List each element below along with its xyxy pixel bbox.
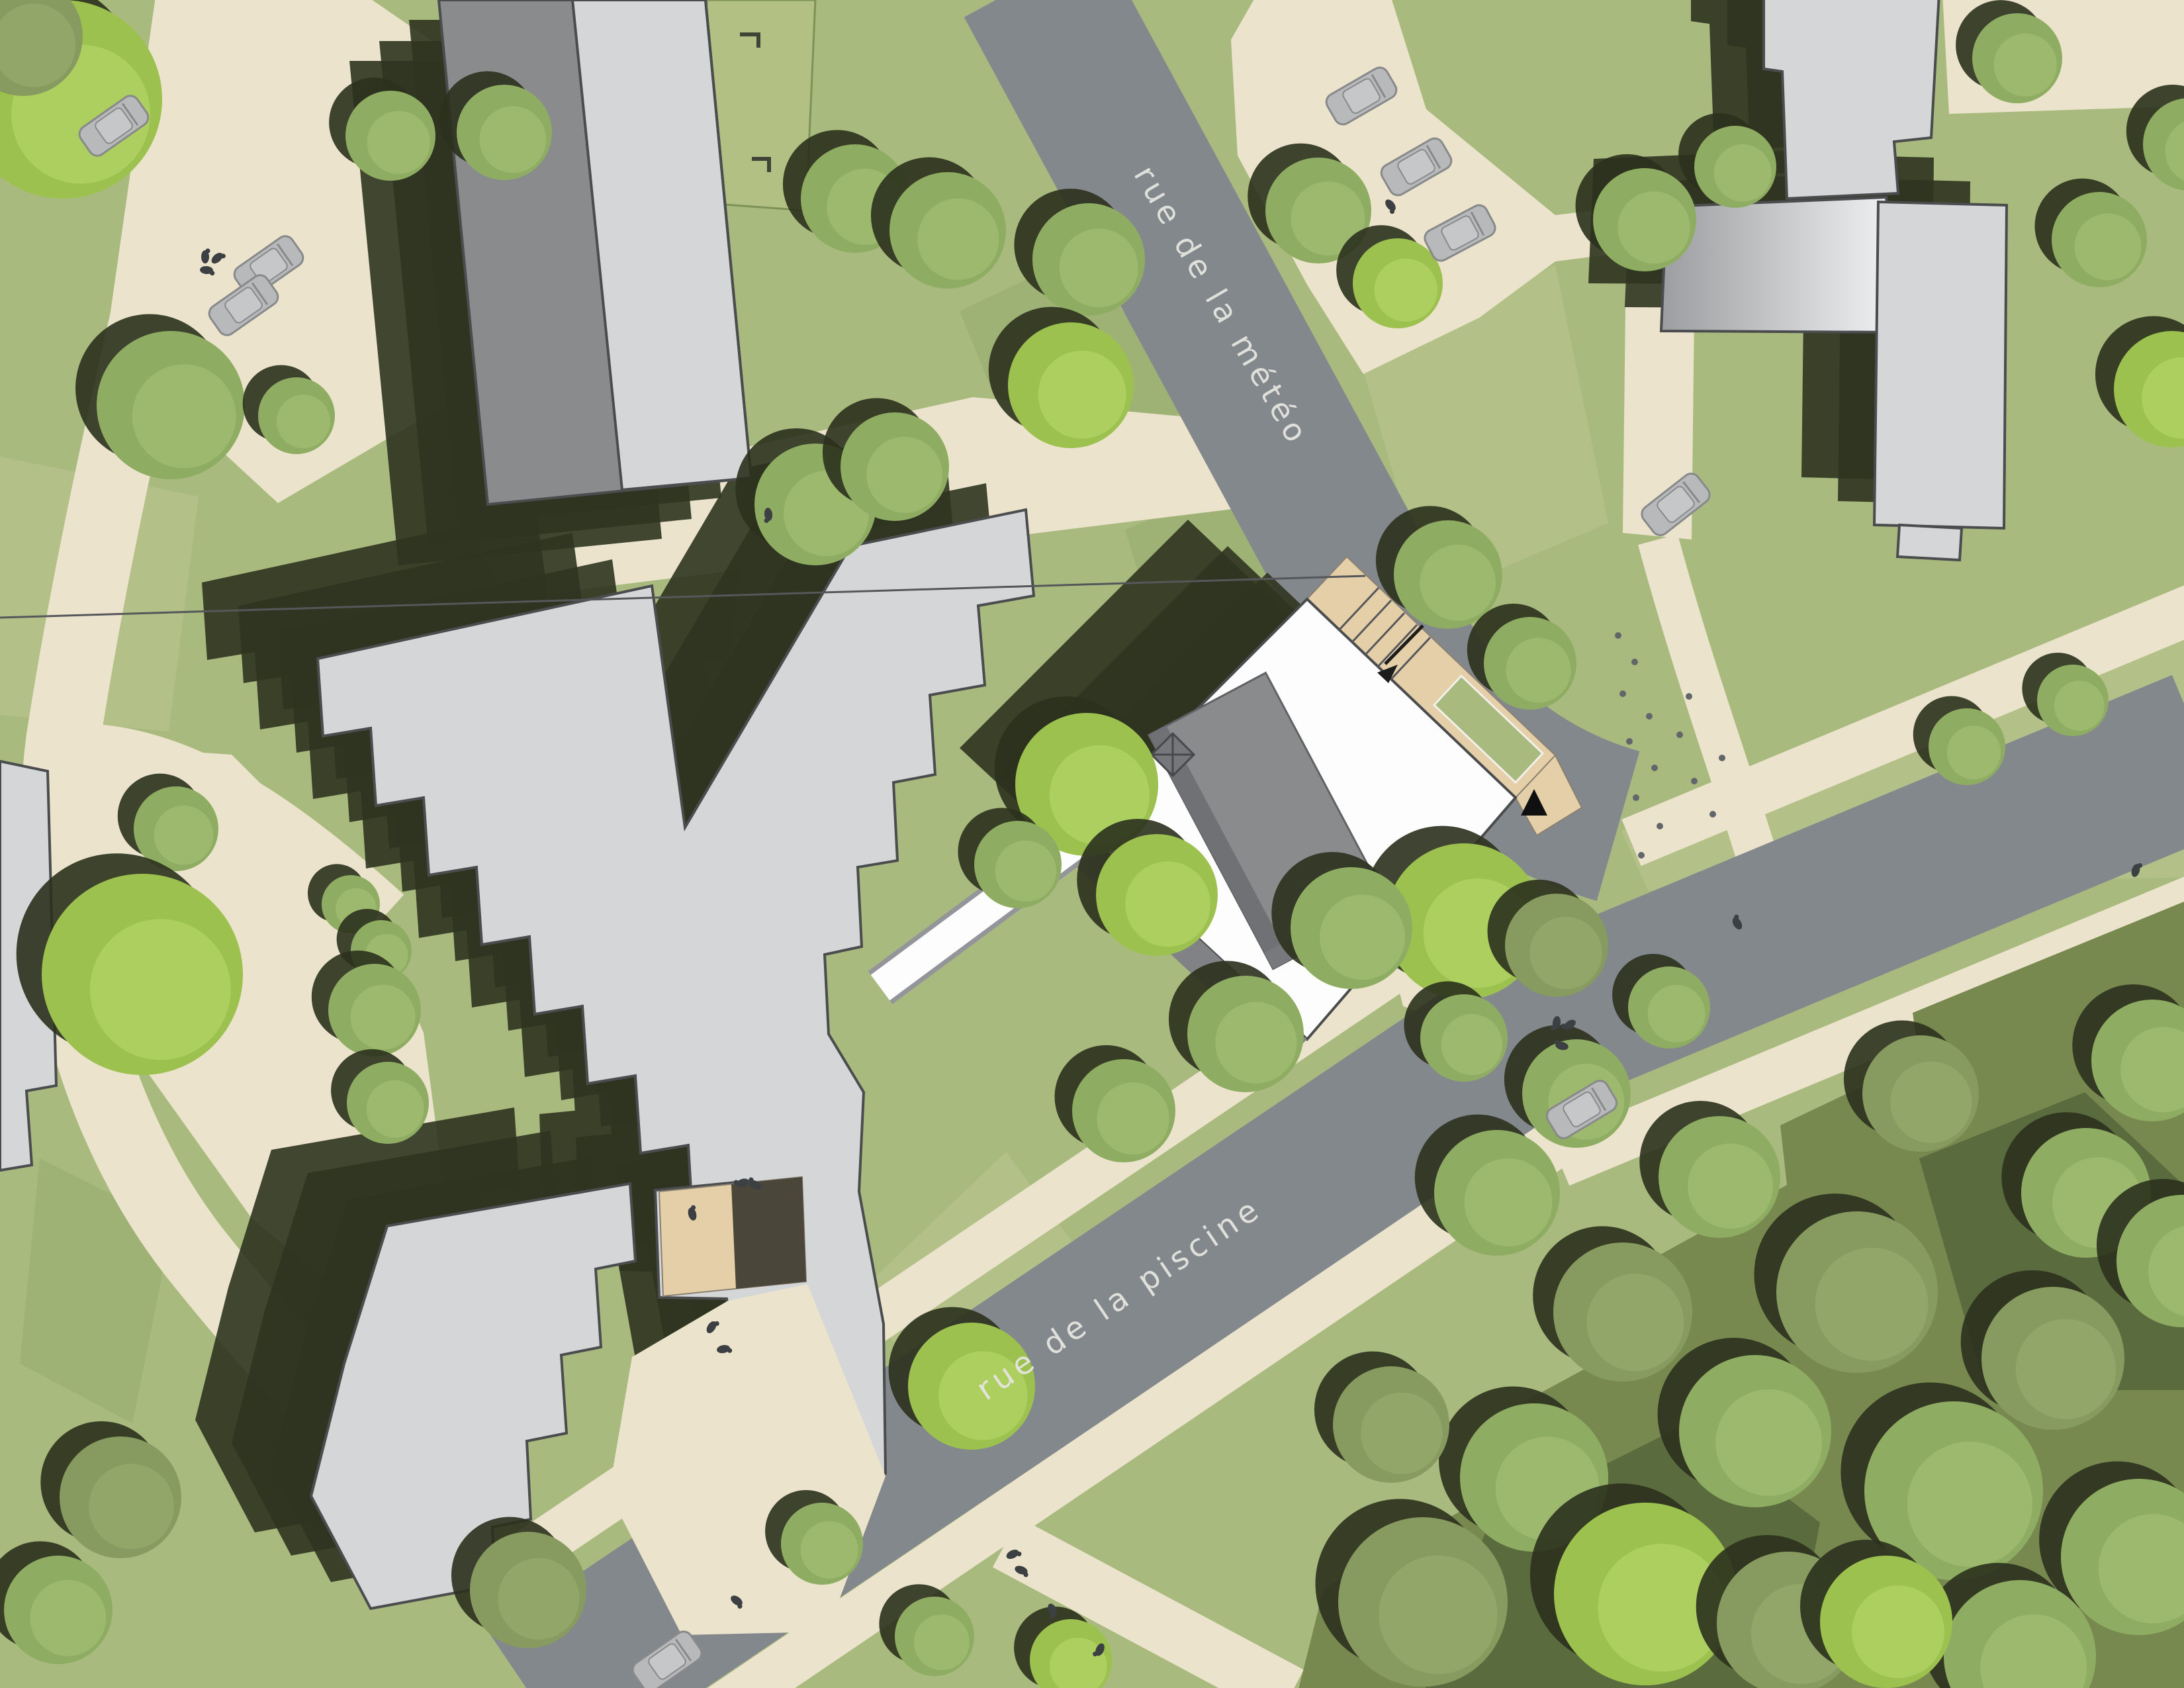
footstep-dot: [1626, 738, 1633, 745]
footstep-dot: [1676, 731, 1683, 738]
footstep-dot: [1615, 632, 1621, 639]
footstep-dot: [1619, 690, 1626, 697]
footstep-dot: [1719, 755, 1725, 761]
footstep-dot: [1651, 765, 1658, 771]
footstep-dot: [1686, 693, 1692, 700]
footstep-dot: [1638, 852, 1645, 859]
metal-roof-hall-northeast: [1661, 197, 1902, 332]
bar-building-northeast: [1874, 202, 2007, 528]
footstep-dot: [1633, 794, 1639, 801]
footstep-dot: [1657, 823, 1663, 829]
footstep-dot: [1646, 713, 1653, 720]
bar-building-stub: [1897, 525, 1962, 560]
site-plan-svg: rue de la météo rue de la piscine: [0, 0, 2184, 1688]
footstep-dot: [1709, 811, 1716, 818]
footstep-dot: [1631, 659, 1638, 665]
site-plan-canvas: rue de la météo rue de la piscine: [0, 0, 2184, 1688]
notch-courtyard-shadow: [731, 1177, 806, 1289]
footstep-dot: [1691, 778, 1698, 784]
